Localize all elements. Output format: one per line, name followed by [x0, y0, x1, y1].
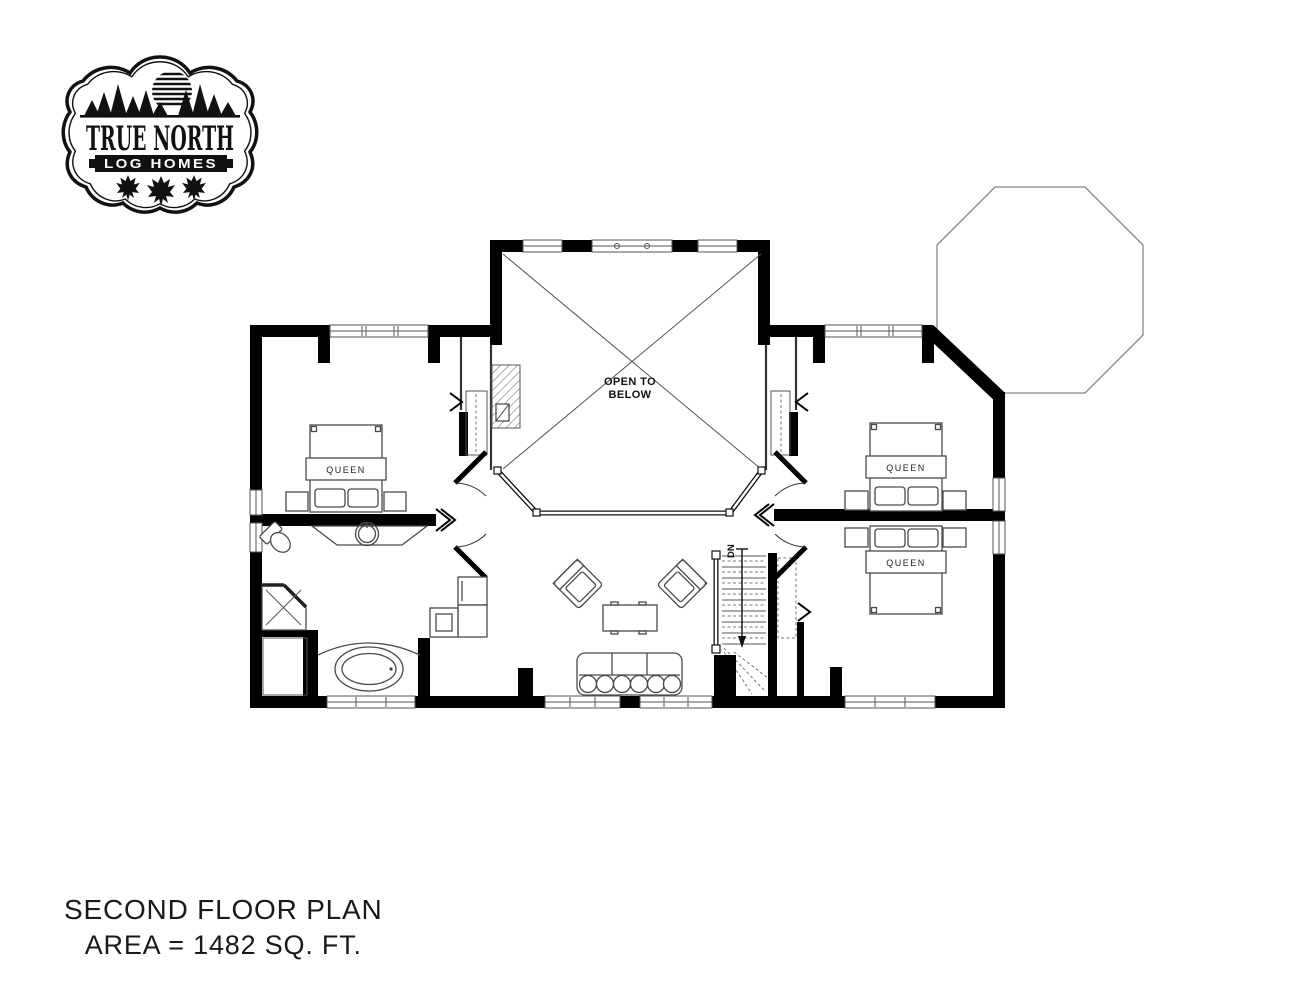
- bathroom: [259, 521, 487, 691]
- stair-newel: [714, 655, 736, 697]
- armchair: [657, 559, 706, 608]
- nightstand: [943, 491, 966, 510]
- open-to-below-label-line1: OPEN TO: [604, 376, 656, 388]
- nightstand: [943, 528, 966, 547]
- nightstand: [845, 528, 868, 547]
- bed-label: QUEEN: [886, 558, 926, 568]
- bed-label: QUEEN: [326, 465, 366, 475]
- nightstand: [845, 491, 868, 510]
- title-block: SECOND FLOOR PLAN AREA = 1482 SQ. FT.: [64, 894, 383, 961]
- right-bedroom-upper: QUEEN: [845, 423, 966, 511]
- window: [545, 696, 620, 708]
- window: [845, 696, 935, 708]
- window: [993, 521, 1005, 554]
- loft-railing: [494, 467, 765, 516]
- floor-plan-canvas: TRUE NORTH LOG HOMES: [0, 0, 1296, 1000]
- closet: [466, 391, 487, 455]
- left-bedroom: QUEEN: [286, 425, 406, 512]
- nightstand: [384, 492, 406, 511]
- right-bedroom-lower: QUEEN: [845, 526, 966, 614]
- bathtub: [318, 643, 420, 691]
- window: [330, 325, 428, 337]
- sofa: [577, 653, 682, 695]
- logo-subtitle-text: LOG HOMES: [104, 157, 218, 171]
- bed-queen-left: QUEEN: [306, 425, 386, 512]
- window: [592, 240, 672, 252]
- chimney: [492, 365, 520, 428]
- stair-treads: [722, 556, 766, 644]
- bed-queen-lower-right: QUEEN: [866, 526, 946, 614]
- window: [698, 240, 737, 252]
- bed-queen-upper-right: QUEEN: [866, 423, 946, 511]
- logo-bar-right-nub: [227, 159, 233, 168]
- window: [640, 696, 712, 708]
- plan-title: SECOND FLOOR PLAN: [64, 894, 383, 926]
- coffee-table: [603, 602, 657, 634]
- wall-break-icon: [798, 603, 810, 621]
- open-to-below-label-line2: BELOW: [609, 389, 652, 401]
- linen-closet: [263, 638, 307, 695]
- closet: [771, 391, 790, 455]
- true-north-logo: TRUE NORTH LOG HOMES: [63, 57, 257, 212]
- corner-shower: [262, 585, 306, 630]
- door-bathroom: [455, 534, 486, 578]
- wall-break-icon: [436, 509, 455, 531]
- door-right-bedroom-upper: [775, 452, 806, 496]
- bed-label: QUEEN: [886, 463, 926, 473]
- door-left-bedroom: [455, 452, 486, 496]
- nightstand: [286, 492, 308, 511]
- window: [993, 478, 1005, 511]
- window: [825, 325, 922, 337]
- window: [523, 240, 562, 252]
- wall-break-icon: [796, 393, 808, 411]
- armchair: [553, 559, 602, 608]
- open-to-below-area: OPEN TO BELOW: [492, 254, 765, 516]
- wall-break-icon: [755, 504, 774, 526]
- logo-title-text: TRUE NORTH: [86, 119, 234, 159]
- vanity-sink: [312, 523, 427, 546]
- window: [327, 696, 415, 708]
- window: [250, 490, 262, 515]
- logo-bar-left-nub: [89, 159, 95, 168]
- loft-sitting-area: [553, 559, 706, 695]
- bathroom-cabinets: [430, 577, 487, 637]
- toilet: [259, 521, 296, 558]
- plan-area: AREA = 1482 SQ. FT.: [64, 930, 383, 961]
- stairs-dn-label: DN: [726, 544, 737, 558]
- door-right-bedroom-lower: [775, 534, 806, 578]
- floor-plan-page: TRUE NORTH LOG HOMES: [0, 0, 1296, 1000]
